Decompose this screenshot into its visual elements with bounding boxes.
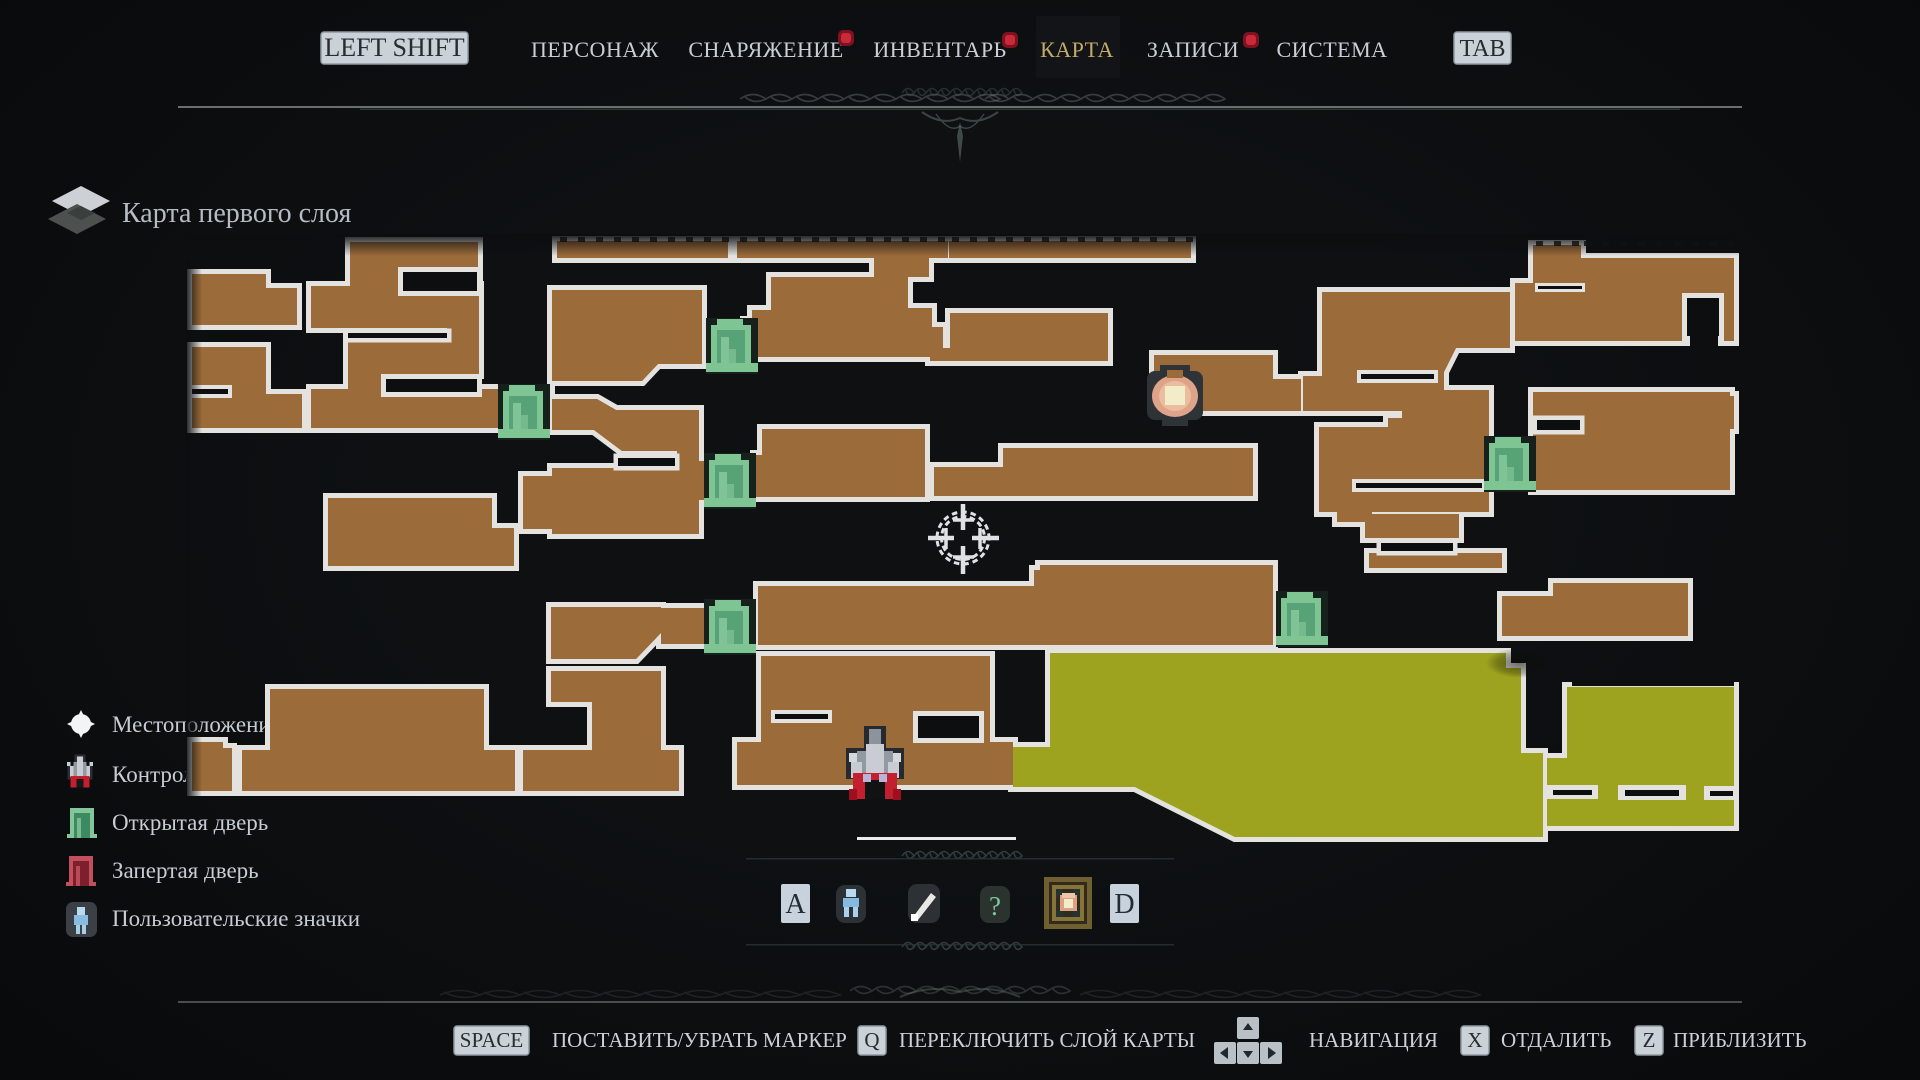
svg-text:D: D bbox=[1114, 889, 1134, 920]
svg-text:ОТДАЛИТЬ: ОТДАЛИТЬ bbox=[1501, 1028, 1611, 1052]
svg-text:SPACE: SPACE bbox=[460, 1028, 523, 1052]
svg-text:Q: Q bbox=[864, 1028, 879, 1052]
svg-text:A: A bbox=[785, 889, 806, 920]
svg-text:?: ? bbox=[989, 891, 1001, 921]
svg-text:ПРИБЛИЗИТЬ: ПРИБЛИЗИТЬ bbox=[1673, 1028, 1807, 1052]
svg-text:X: X bbox=[1467, 1028, 1482, 1052]
svg-text:ПЕРЕКЛЮЧИТЬ СЛОЙ КАРТЫ: ПЕРЕКЛЮЧИТЬ СЛОЙ КАРТЫ bbox=[899, 1028, 1195, 1052]
svg-text:Z: Z bbox=[1643, 1028, 1656, 1052]
svg-text:ПОСТАВИТЬ/УБРАТЬ МАРКЕР: ПОСТАВИТЬ/УБРАТЬ МАРКЕР bbox=[552, 1028, 847, 1052]
svg-text:НАВИГАЦИЯ: НАВИГАЦИЯ bbox=[1309, 1028, 1438, 1052]
